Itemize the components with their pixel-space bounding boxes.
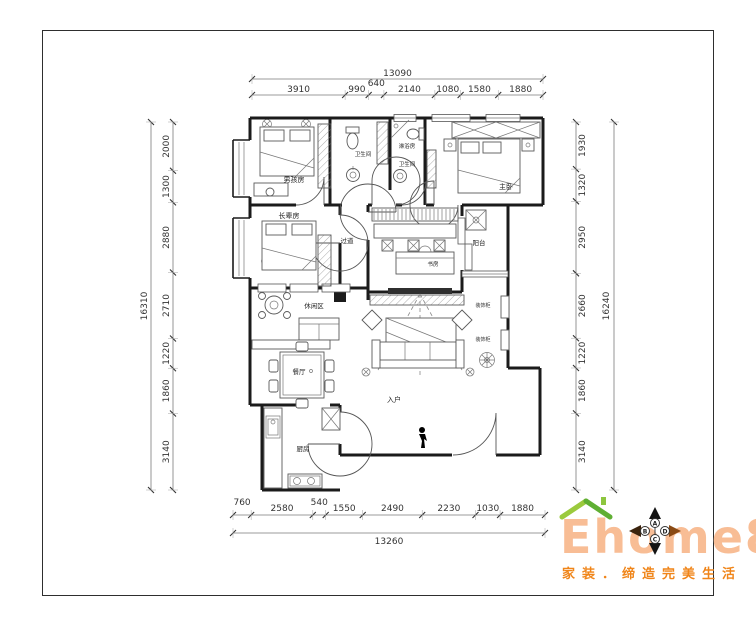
desk (374, 224, 456, 238)
master-bedroom-furniture (427, 122, 540, 193)
dim-right-segments: 1930132029502660122018603140 (571, 119, 588, 493)
room-label-boys-room: 男孩房 (284, 175, 305, 184)
dim-label: 3910 (287, 85, 310, 95)
round-table (265, 296, 283, 314)
dim-label: 2230 (437, 504, 460, 514)
decor-cabinet (501, 296, 509, 318)
room-label-master-bedroom: 主卧 (499, 182, 513, 191)
entry-person-icon (419, 427, 427, 448)
dim-label: 1880 (509, 85, 532, 95)
dim-top-total: 13090 (249, 69, 546, 84)
sink (394, 170, 407, 183)
toilet (346, 127, 359, 133)
dim-label: 640 (368, 79, 385, 89)
decor-cabinet (501, 330, 509, 350)
piano (396, 252, 454, 274)
elders-room-furniture (262, 221, 332, 286)
dim-label: 13260 (375, 537, 404, 547)
dim-label: 2660 (578, 294, 588, 317)
dim-label: 1860 (578, 379, 588, 402)
nightstand (522, 139, 534, 151)
dim-label: 1220 (578, 341, 588, 364)
room-label-study: 书房 (427, 260, 439, 268)
dim-label: 1300 (162, 175, 172, 198)
tv-cabinet (370, 295, 464, 305)
toilet (419, 128, 424, 140)
compass-letter-west: B (643, 528, 648, 535)
sink (347, 169, 360, 182)
dim-label: 13090 (383, 69, 412, 79)
living-room-furniture (362, 288, 509, 378)
projection-screen (388, 288, 452, 294)
dim-label: 2950 (578, 226, 588, 249)
sliding-panel (258, 284, 286, 292)
dim-label: 990 (348, 85, 365, 95)
floor-plan: 男孩房 卫生间 淋浴房 卫生间 主卧 长辈房 过道 阳台 书房 休闲区 餐厅 厨… (0, 0, 756, 630)
dim-label: 540 (311, 498, 328, 508)
balcony-furniture (466, 210, 486, 230)
dim-label: 2490 (381, 504, 404, 514)
piano-stool (419, 246, 431, 252)
room-label-shower-room: 淋浴房 (399, 142, 416, 150)
dim-label: 1320 (578, 173, 588, 196)
boys-room-furniture (254, 120, 331, 197)
dim-label: 1930 (578, 134, 588, 157)
dim-label: 2000 (162, 135, 172, 158)
room-label-leisure-area: 休闲区 (304, 301, 324, 310)
nightstand (444, 139, 456, 151)
dim-label: 1220 (162, 342, 172, 365)
dim-right-total: 16240 (602, 119, 619, 493)
room-label-kitchen: 厨房 (297, 444, 310, 453)
accent-chair (362, 310, 382, 330)
dim-label: 1080 (436, 85, 459, 95)
dim-left-segments: 2000130028802710122018603140 (162, 119, 178, 493)
room-label-elders-room: 长辈房 (279, 211, 300, 220)
sofa (380, 342, 456, 362)
dim-bottom-total: 13260 (230, 528, 548, 547)
bookshelf (372, 208, 458, 221)
compass-letter-south: C (653, 536, 658, 543)
wardrobe (318, 235, 331, 286)
room-label-hallway: 过道 (341, 236, 355, 245)
leisure-area-furniture (252, 293, 339, 350)
dim-label: 1880 (511, 504, 534, 514)
study-furniture (372, 208, 458, 274)
compass-letter-north: A (653, 520, 658, 527)
slogan-text: 家装．缔造完美生活 (562, 566, 742, 582)
console-cabinet (252, 340, 330, 349)
dim-label: 1860 (162, 379, 172, 402)
room-label-dining-room: 餐厅 (293, 367, 307, 376)
dim-label: 3140 (578, 440, 588, 463)
dim-label: 16310 (140, 291, 150, 320)
dim-label: 2880 (162, 226, 172, 249)
dim-label: 2710 (162, 294, 172, 317)
wardrobe (318, 124, 331, 188)
dim-left-total: 16310 (140, 119, 156, 493)
room-label-balcony: 阳台 (473, 238, 486, 247)
dim-label: 1030 (476, 504, 499, 514)
dim-label: 1580 (468, 85, 491, 95)
dim-bottom-segments: 760258054015502490223010301880 (230, 498, 548, 520)
dim-label: 3140 (162, 440, 172, 463)
compass-letter-east: D (663, 528, 668, 535)
dim-label: 760 (233, 498, 250, 508)
dim-top-segments: 39109906402140108015801880 (249, 79, 546, 100)
closet (452, 122, 540, 138)
furniture (252, 120, 540, 489)
room-label-bathroom-2: 卫生间 (399, 160, 416, 168)
shower-head (394, 124, 398, 128)
room-label-bathroom-1: 卫生间 (355, 150, 372, 158)
dim-label: 2140 (398, 85, 421, 95)
label-decor-cabinet-1: 装饰柜 (475, 302, 490, 309)
balcony-sliding-door (458, 218, 465, 244)
label-decor-cabinet-2: 装饰柜 (475, 336, 490, 343)
room-label-entry: 入户 (387, 395, 401, 404)
dim-label: 1550 (333, 504, 356, 514)
dim-label: 2580 (271, 504, 294, 514)
dim-label: 16240 (602, 291, 612, 320)
tv-cabinet (427, 150, 436, 188)
